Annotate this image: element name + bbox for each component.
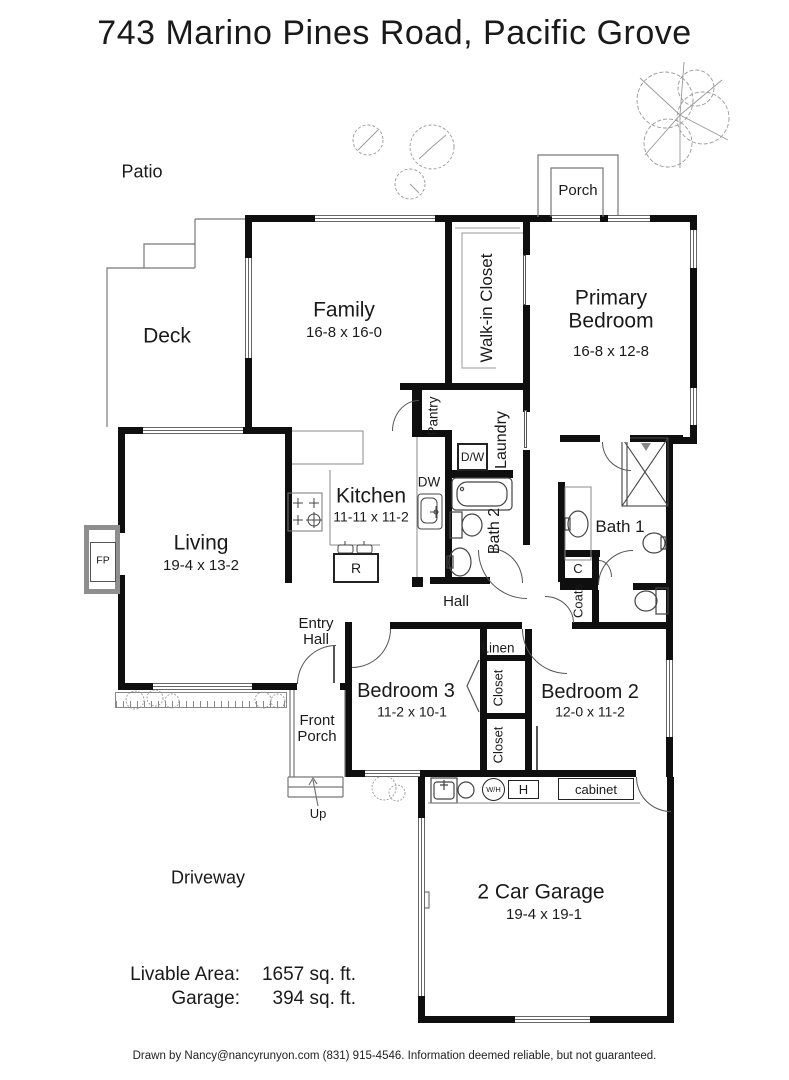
kitchen-label: Kitchen — [336, 486, 406, 509]
wall — [418, 772, 425, 818]
wall — [430, 577, 490, 584]
kitchen-sink-icon — [338, 541, 372, 553]
range-label: R — [351, 560, 361, 576]
bedroom3-label: Bedroom 3 — [357, 681, 455, 703]
bedroom2-dims: 12-0 x 11-2 — [555, 704, 625, 719]
porch-label: Porch — [558, 183, 597, 199]
door-leaf — [523, 255, 526, 305]
front-porch-label: Front Porch — [290, 713, 345, 745]
primary-bedroom-label: Primary Bedroom — [551, 287, 671, 332]
window — [365, 770, 420, 777]
wall — [523, 305, 530, 390]
garage-area-label: Garage: — [122, 988, 240, 1010]
washer-dryer-label: D/W — [461, 450, 484, 464]
pantry-label: Pantry — [426, 396, 441, 435]
wall — [523, 470, 530, 545]
window — [245, 258, 252, 358]
door-opening — [352, 622, 390, 629]
credit-line: Drawn by Nancy@nancyrunyon.com (831) 915… — [0, 1050, 789, 1062]
toilet-bath2-icon — [450, 512, 482, 538]
bedroom3-dims: 11-2 x 10-1 — [377, 704, 447, 719]
window — [143, 427, 243, 434]
range-box: R — [333, 553, 379, 583]
wall — [445, 215, 452, 390]
cabinet-label: cabinet — [575, 782, 617, 797]
kitchen-dims: 11-11 x 11-2 — [333, 509, 409, 524]
door-arc — [602, 442, 631, 471]
patio-label: Patio — [121, 162, 162, 181]
wall — [523, 383, 530, 412]
tree-icon — [637, 62, 729, 168]
window — [315, 215, 435, 222]
door-arc — [392, 400, 419, 431]
garage-door — [418, 818, 425, 996]
page-title: 743 Marino Pines Road, Pacific Grove — [0, 14, 789, 53]
porch-door-threshold — [552, 215, 600, 222]
area-summary: Livable Area: 1657 sq. ft. Garage: 394 s… — [122, 964, 356, 1010]
washer-dryer-box: D/W — [457, 443, 488, 471]
garage-dims: 19-4 x 19-1 — [506, 907, 582, 923]
living-label: Living — [174, 533, 229, 556]
family-dims: 16-8 x 16-0 — [306, 325, 382, 341]
closet-bedroom3-label: Closet — [491, 670, 506, 707]
deck-outline — [107, 219, 245, 427]
door-opening — [522, 622, 572, 629]
door-arc — [636, 777, 671, 812]
window — [153, 683, 252, 690]
driveway-label: Driveway — [171, 868, 245, 887]
entry-hall-label: Entry Hall — [291, 616, 341, 648]
sink-bath1-right-icon — [643, 533, 666, 553]
wall — [558, 482, 565, 582]
wall — [345, 622, 352, 777]
toilet-bath1-icon — [635, 588, 668, 614]
primary-bedroom-dims: 16-8 x 12-8 — [573, 344, 649, 360]
up-label: Up — [310, 807, 327, 821]
garage-tub-icon — [458, 782, 474, 798]
deck-label: Deck — [143, 326, 191, 349]
closet-bedroom2-label: Closet — [491, 727, 506, 764]
c-closet-label: C — [573, 562, 582, 576]
linen-label: Linen — [481, 642, 514, 657]
wall — [480, 713, 532, 719]
door-arc — [352, 629, 391, 668]
door-arc — [478, 550, 527, 599]
wall — [523, 222, 530, 255]
door-opening — [636, 770, 666, 777]
window — [690, 388, 697, 425]
wall — [450, 470, 513, 478]
bath2-label: Bath 2 — [486, 508, 504, 554]
stove-icon — [288, 493, 322, 531]
family-label: Family — [313, 300, 375, 323]
livable-area-value: 1657 sq. ft. — [256, 964, 356, 986]
wall — [412, 577, 423, 587]
door-leaf — [524, 410, 527, 448]
wall — [418, 996, 425, 1023]
door-leaf — [536, 726, 538, 770]
window — [515, 1016, 590, 1023]
livable-area-label: Livable Area: — [122, 964, 240, 986]
coats-label: Coats — [571, 584, 586, 618]
window — [690, 230, 697, 268]
floor-plan: 743 Marino Pines Road, Pacific Grove — [0, 0, 789, 1080]
heater-label: H — [519, 782, 528, 797]
dw-sink-icon — [418, 494, 442, 529]
water-heater-circle: W/H — [482, 778, 505, 801]
door-opening — [297, 683, 340, 690]
wall — [118, 427, 125, 533]
wall — [445, 437, 452, 583]
door-leaf — [333, 645, 335, 683]
window — [608, 215, 650, 222]
door-arc — [297, 645, 336, 684]
bathtub-icon — [452, 478, 512, 510]
walk-in-closet-label: Walk-in Closet — [477, 254, 497, 363]
water-heater-label: W/H — [486, 785, 501, 794]
cabinet-box: cabinet — [558, 778, 634, 800]
front-porch-outline — [288, 690, 345, 806]
living-dims: 19-4 x 13-2 — [163, 558, 239, 574]
planter-strip — [115, 692, 287, 708]
wall — [667, 777, 674, 1023]
wall — [523, 450, 530, 472]
garage-area-value: 394 sq. ft. — [256, 988, 356, 1010]
shrub-icon — [353, 125, 454, 199]
sink-bath1-left-icon — [565, 511, 588, 537]
bifold-door-icon — [467, 660, 479, 712]
wall — [560, 578, 594, 583]
wall — [285, 427, 292, 583]
fireplace-label: FP — [96, 555, 109, 566]
wall — [558, 550, 600, 557]
garage-label: 2 Car Garage — [477, 882, 604, 905]
door-opening — [600, 435, 630, 442]
heater-box: H — [508, 780, 539, 799]
bath1-label: Bath 1 — [595, 518, 644, 536]
dishwasher-label: DW — [418, 476, 441, 491]
wall — [345, 622, 672, 629]
window — [666, 660, 673, 737]
bedroom2-label: Bedroom 2 — [541, 682, 639, 704]
laundry-label: Laundry — [493, 411, 511, 469]
hall-label: Hall — [443, 594, 469, 610]
